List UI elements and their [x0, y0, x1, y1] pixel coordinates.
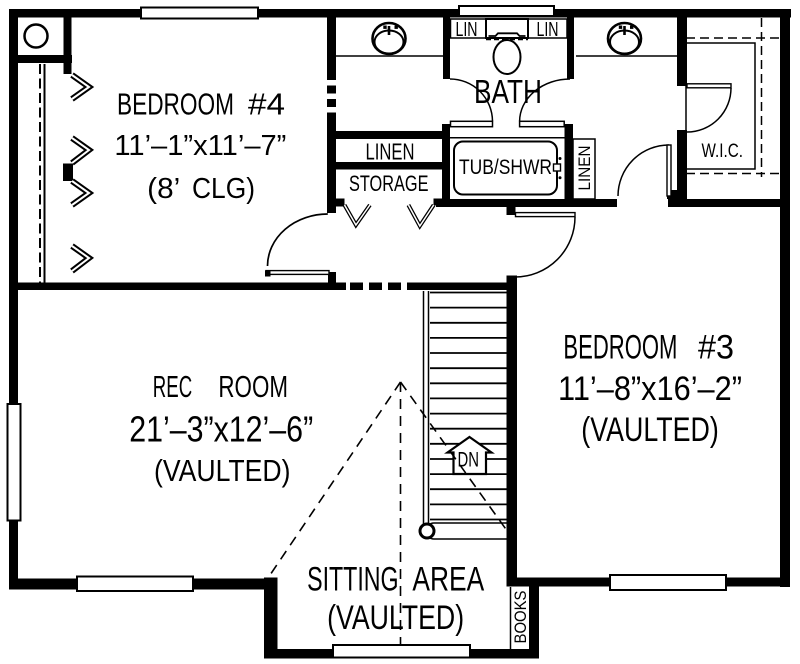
- svg-text:ROOM: ROOM: [218, 369, 288, 404]
- svg-text:11’–1”x11’–7”: 11’–1”x11’–7”: [114, 130, 286, 162]
- svg-text:CLG): CLG): [192, 173, 255, 205]
- svg-text:SITTING: SITTING: [307, 561, 399, 599]
- svg-text:(VAULTED): (VAULTED): [581, 411, 719, 449]
- svg-text:REC: REC: [153, 369, 192, 404]
- svg-text:LIN: LIN: [456, 19, 478, 41]
- svg-text:W.I.C.: W.I.C.: [702, 141, 744, 162]
- svg-text:(VAULTED): (VAULTED): [154, 453, 291, 488]
- svg-text:BOOKS: BOOKS: [511, 591, 530, 644]
- svg-text:(8’: (8’: [147, 173, 180, 205]
- svg-text:(VAULTED): (VAULTED): [327, 599, 464, 637]
- svg-text:AREA: AREA: [412, 561, 484, 599]
- svg-text:BEDROOM: BEDROOM: [563, 329, 677, 367]
- svg-text:DN: DN: [458, 449, 480, 472]
- svg-text:#4: #4: [248, 87, 285, 122]
- svg-text:BEDROOM: BEDROOM: [117, 87, 234, 122]
- svg-text:LINEN: LINEN: [575, 146, 594, 191]
- svg-text:11’–8”x16’–2”: 11’–8”x16’–2”: [558, 370, 742, 408]
- svg-text:TUB/SHWR: TUB/SHWR: [459, 156, 552, 179]
- svg-text:21’–3”x12’–6”: 21’–3”x12’–6”: [129, 409, 313, 450]
- svg-text:STORAGE: STORAGE: [349, 171, 429, 196]
- svg-text:LINEN: LINEN: [366, 139, 415, 165]
- svg-text:#3: #3: [698, 329, 734, 367]
- svg-text:LIN: LIN: [537, 19, 559, 41]
- svg-text:BATH: BATH: [474, 73, 542, 110]
